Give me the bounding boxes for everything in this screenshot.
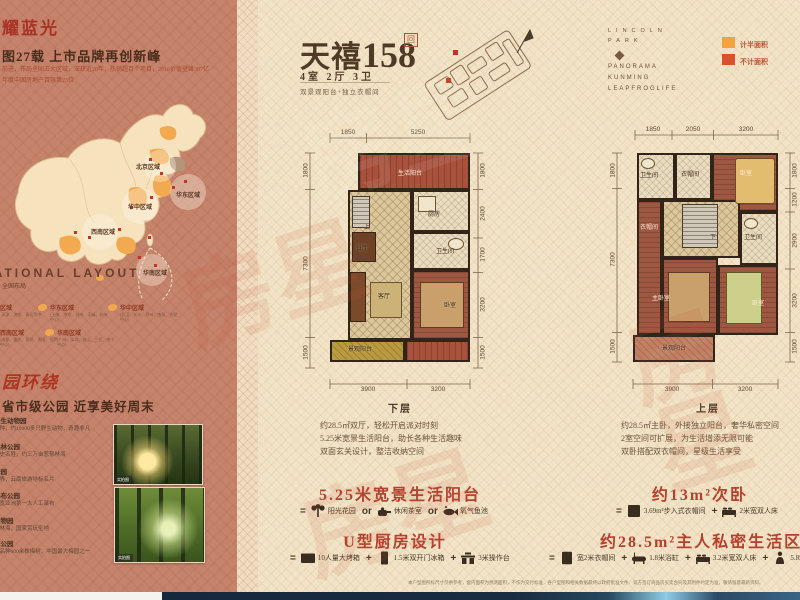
feature-item-label: 3.2米宽双人床 (713, 553, 757, 563)
or-sign: or (428, 506, 438, 517)
plus-sign: + (621, 553, 627, 564)
dim: 1200 (792, 185, 799, 215)
dim: 1850 (633, 126, 673, 133)
park-photo-sunlight: 实拍图 (113, 424, 203, 485)
map-label-huazhong: 华中区域 (128, 203, 152, 211)
feature-item-label: 休闲茶室 (394, 506, 422, 516)
unit-tagline: 双景观阳台+独立衣帽间 (300, 86, 380, 96)
diamond-icon (615, 51, 625, 61)
dim: 7300 (610, 245, 617, 275)
national-layout-title: NATIONAL LAYOUT (0, 266, 139, 280)
legend-label-excluded-area: 不计面积 (740, 57, 768, 67)
dimension-lines (300, 125, 500, 395)
legend-swatch-excluded-area (722, 54, 735, 65)
seal-icon: 回 (404, 33, 418, 47)
equals-sign: = (549, 553, 555, 564)
dim: 1850 (328, 129, 368, 136)
photo-caption: 实拍图 (115, 554, 133, 562)
brand-line-top1: LINCOLN (608, 28, 667, 34)
floor-label-upper: 上层 (696, 400, 720, 415)
map-label-beijing: 北京区域 (136, 163, 160, 171)
park-item: 森林公园 历史名胜，约三万亩葱郁林海 (0, 444, 66, 459)
legend-item-huazhong: 华中区域 (武汉、长沙、郑州、南昌、合肥中心) (120, 303, 178, 322)
floor-label-lower: 下层 (388, 400, 412, 415)
park-headline: 省市级公园 近享美好周末 (2, 396, 155, 415)
dim: 1500 (480, 338, 487, 368)
bottom-strip (0, 592, 800, 600)
dim: 3900 (348, 386, 388, 393)
plan-desc: 双面玄关设计，整洁收纳空间 (320, 445, 424, 458)
legend-item-huadong: 华东区域 (上海、南京、苏州、无锡、杭州中心) (50, 303, 108, 322)
page-gutter (237, 0, 258, 592)
site-marker (446, 78, 451, 83)
dimension-lines (600, 125, 800, 395)
dim: 3200 (725, 386, 765, 393)
plan-desc: 约28.5㎡双厅，轻松开启派对时刻 (320, 419, 438, 432)
feature-item-label: 5.85m²私人空间 (790, 553, 800, 563)
legend-item-huanan: 华南区域 (广州、深圳、佛山、三亚、南宁中心) (57, 328, 115, 347)
park-item: 公园 世界，云南旅游地标名片 (0, 469, 55, 484)
dim: 3200 (726, 126, 766, 133)
site-plan (418, 20, 543, 125)
feature-item-label: 1.8米浴缸 (649, 553, 679, 563)
plus-sign: + (763, 553, 769, 564)
closet-icon (626, 504, 642, 518)
dim: 1800 (303, 156, 310, 186)
oven-icon (300, 551, 316, 565)
sidebar-subline2: 年度中国房地产百强第23位 (2, 77, 74, 85)
compass-north-icon (517, 30, 533, 53)
fridge-icon (376, 551, 392, 565)
brand-line2: KUNMING (608, 75, 650, 81)
park-item: 野生动物园 多种，约10000多只野生动物，奇趣非凡 (0, 418, 90, 433)
dim: 1500 (303, 338, 310, 368)
park-photo-lawn: 实拍图 (114, 487, 205, 563)
park-item: 植物园 杏林海，国家赏玩圣地 (0, 518, 49, 533)
feature-formula: = 3.69m²步入式衣帽间 + 2米宽双人床 (612, 504, 780, 518)
feature-heading: 约28.5m²主人私密生活区 (600, 528, 790, 552)
feature-formula: = 宽2米衣帽间 + 1.8米浴缸 + 3.2米宽双人床 + 5.85m²私人空… (545, 551, 800, 565)
park-script-heading: 园环绕 (2, 368, 59, 393)
brand-line1: PANORAMA (608, 64, 658, 70)
brochure-page: 耀蓝光 图27载 上市品牌再创新峰 前进，布局全国五大区域，深耕近20年，热销超… (0, 0, 800, 600)
feature-item-label: 10人量大烤箱 (318, 553, 360, 563)
dim: 2400 (480, 199, 487, 229)
feature-item-label: 1.5米双开门冰箱 (394, 553, 445, 563)
plan-desc: 约28.5㎡主卧，外接独立阳台，奢华私密空间 (621, 419, 779, 432)
legend-swatch-half-area (722, 37, 735, 48)
plus-sign: + (366, 553, 372, 564)
dim: 1800 (480, 156, 487, 186)
equals-sign: = (290, 553, 296, 564)
dim: 1500 (610, 332, 617, 362)
unit-spec: 4室 2厅 3卫 (300, 68, 374, 83)
dim: 1800 (792, 156, 799, 186)
site-marker (453, 50, 458, 55)
bathtub-icon (631, 551, 647, 565)
equals-sign: = (300, 506, 306, 517)
wardrobe-icon (559, 551, 575, 565)
plus-sign: + (685, 553, 691, 564)
dim: 3200 (480, 290, 487, 320)
dim: 1500 (792, 332, 799, 362)
dim: 1700 (480, 240, 487, 270)
dim: 3200 (418, 386, 458, 393)
plan-desc: 双卧搭配双衣帽间，星级生活享受 (621, 445, 741, 458)
person-icon (772, 551, 788, 565)
feature-item-label: 3.69m²步入式衣帽间 (644, 506, 706, 516)
brand-line-top2: PARK (608, 38, 643, 44)
dim: 5250 (398, 129, 438, 136)
feature-item-label: 3米操作台 (478, 553, 510, 563)
feature-heading: U型厨房设计 (295, 528, 495, 552)
or-sign: or (362, 506, 372, 517)
disclaimer: 本户型图所标尺寸仅供参考，套内面积为预测面积，不作为交付标准，各户型图和相关数据… (408, 580, 796, 586)
bed-icon (721, 504, 737, 518)
feature-heading: 约13m²次卧 (615, 481, 785, 505)
feature-formula: = 阳光花园 or 休闲茶室 or 氧气鱼池 (296, 504, 490, 518)
plus-sign: + (712, 506, 718, 517)
dim: 2900 (792, 226, 799, 256)
dim: 2050 (673, 126, 713, 133)
bottom-strip-dark (162, 592, 800, 600)
dim: 3200 (792, 286, 799, 316)
national-layout-cn: 全国布局 (2, 281, 26, 290)
feature-item-label: 宽2米衣帽间 (577, 553, 616, 563)
legend-label-half-area: 计半面积 (740, 40, 768, 50)
region-blob-icon (108, 304, 117, 311)
fish-icon (442, 504, 458, 518)
plan-desc: 2室空间可扩展，为生活增添无限可能 (621, 432, 753, 445)
feature-item-label: 阳光花园 (328, 506, 356, 516)
dim: 1800 (610, 156, 617, 186)
plan-desc: 5.25米宽景生活阳台，助长各种生活趣味 (320, 432, 462, 445)
counter-icon (460, 551, 476, 565)
feature-item-label: 2米宽双人床 (739, 506, 778, 516)
photo-caption: 实拍图 (114, 476, 132, 484)
feature-heading: 5.25米宽景生活阳台 (295, 481, 505, 505)
header-divider (300, 82, 390, 83)
sidebar-brand-heading: 耀蓝光 (2, 14, 59, 39)
map-label-huadong: 华东区域 (176, 191, 200, 199)
brand-line3: LEAPFROGLIFE (608, 86, 677, 92)
sidebar-subline1: 前进，布局全国五大区域，深耕近20年，热销超百个项目，2016价值登峰307亿 (2, 66, 209, 74)
plant-icon (310, 504, 326, 518)
map-label-xinan: 西南区域 (91, 228, 115, 236)
dim: 7300 (303, 249, 310, 279)
feature-formula: = 10人量大烤箱 + 1.5米双开门冰箱 + 3米操作台 (286, 551, 512, 565)
equals-sign: = (616, 506, 622, 517)
park-item: 瀑布公园 米宽亚洲第一大人工瀑布 (0, 493, 55, 508)
bed-icon (695, 551, 711, 565)
dim: 3900 (652, 386, 692, 393)
sidebar: 耀蓝光 图27载 上市品牌再创新峰 前进，布局全国五大区域，深耕近20年，热销超… (0, 0, 237, 592)
feature-item-label: 氧气鱼池 (460, 506, 488, 516)
map-label-huanan: 华南区域 (143, 269, 167, 277)
plus-sign: + (450, 553, 456, 564)
sidebar-headline: 图27载 上市品牌再创新峰 (2, 46, 161, 65)
teapot-icon (376, 504, 392, 518)
park-item: 潭公园 个品种600余株梅树，中国最大梅园之一 (0, 541, 90, 556)
